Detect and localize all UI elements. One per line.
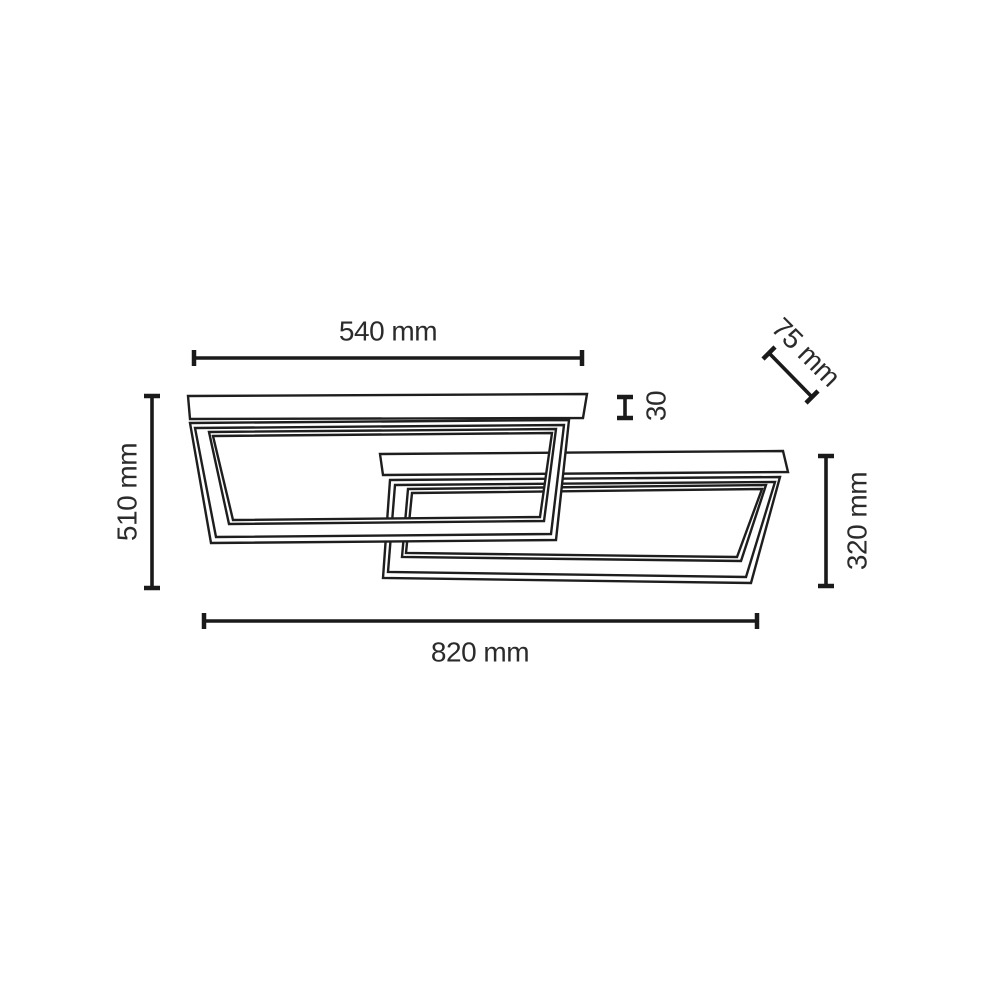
dim-top-width-label: 540 mm <box>339 316 437 347</box>
left-frame-canopy <box>188 394 587 419</box>
left-frame-inner-profile-line <box>209 429 556 524</box>
right-frame-canopy <box>380 451 788 475</box>
dim-left-height: 510 mm <box>112 396 161 588</box>
dim-total-width-label: 820 mm <box>431 637 529 668</box>
technical-drawing-page: 540 mm 75 mm 30 510 mm <box>0 0 1000 1000</box>
dim-profile-height-label: 30 <box>641 391 672 421</box>
dim-top-width: 540 mm <box>194 316 582 367</box>
dim-profile-height: 30 <box>617 391 672 421</box>
dim-right-height-label: 320 mm <box>842 472 873 570</box>
dim-total-width: 820 mm <box>204 613 757 668</box>
dim-right-height: 320 mm <box>818 456 873 586</box>
lamp-fixture-drawing <box>188 394 788 583</box>
dim-profile-depth-label: 75 mm <box>766 312 847 393</box>
dim-profile-depth: 75 mm <box>763 312 846 403</box>
dimension-diagram-svg: 540 mm 75 mm 30 510 mm <box>0 0 1000 1000</box>
dim-left-height-label: 510 mm <box>112 443 143 541</box>
